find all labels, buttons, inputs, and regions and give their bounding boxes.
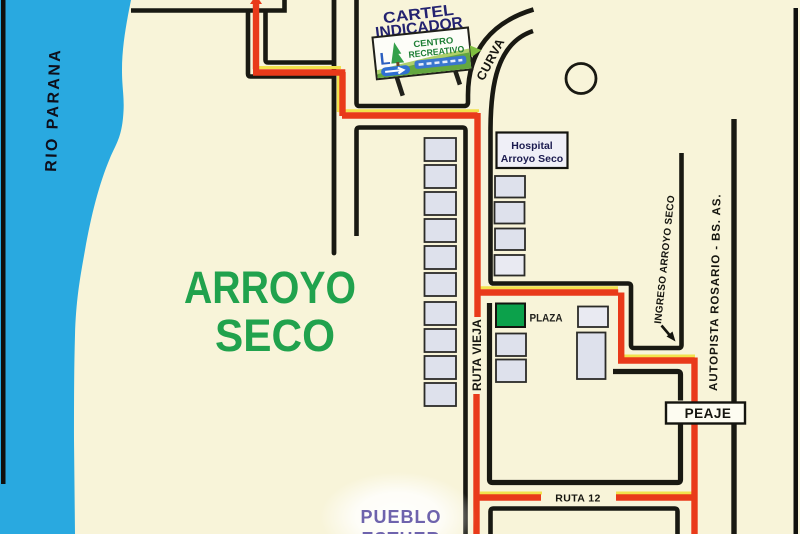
- svg-text:L: L: [379, 49, 391, 69]
- svg-text:Hospital: Hospital: [511, 140, 553, 152]
- svg-text:SECO: SECO: [215, 310, 335, 361]
- svg-text:PEAJE: PEAJE: [685, 406, 732, 421]
- svg-text:ARROYO: ARROYO: [184, 262, 356, 313]
- svg-text:RUTA VIEJA: RUTA VIEJA: [470, 319, 484, 391]
- svg-text:ESTHER: ESTHER: [361, 529, 440, 534]
- svg-text:PUEBLO: PUEBLO: [360, 507, 441, 527]
- svg-text:PLAZA: PLAZA: [530, 313, 563, 325]
- svg-text:Arroyo Seco: Arroyo Seco: [501, 153, 563, 165]
- svg-text:RUTA 12: RUTA 12: [555, 493, 600, 505]
